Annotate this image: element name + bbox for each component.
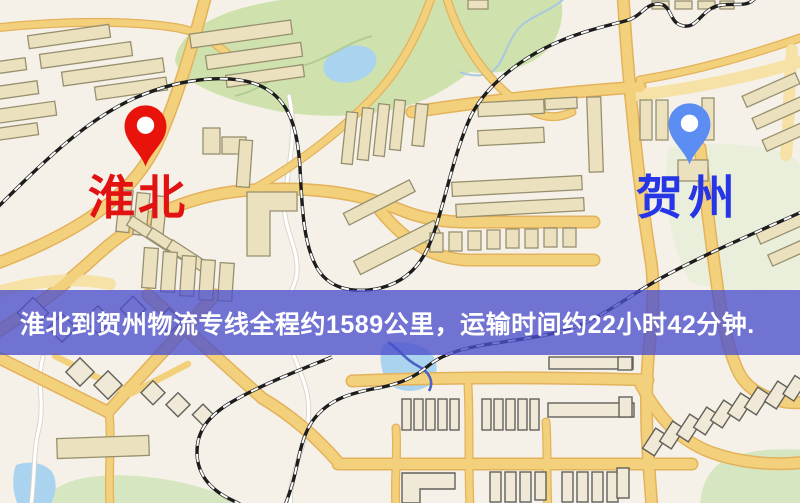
destination-marker-shape xyxy=(669,103,711,164)
banner-text: 淮北到贺州物流专线全程约1589公里，运输时间约22小时42分钟. xyxy=(0,305,755,341)
map-screenshot: 淮北 贺州 淮北到贺州物流专线全程约1589公里，运输时间约22小时42分钟. xyxy=(0,0,800,503)
map-canvas xyxy=(0,0,800,503)
destination-marker-icon xyxy=(667,102,712,166)
origin-marker-shape xyxy=(125,105,167,166)
origin-marker-icon xyxy=(123,104,168,168)
origin-label: 淮北 xyxy=(88,176,188,223)
info-banner: 淮北到贺州物流专线全程约1589公里，运输时间约22小时42分钟. xyxy=(0,290,800,355)
origin-marker-hole xyxy=(137,117,154,134)
destination-label: 贺州 xyxy=(636,176,740,223)
destination-marker-hole xyxy=(681,115,698,132)
